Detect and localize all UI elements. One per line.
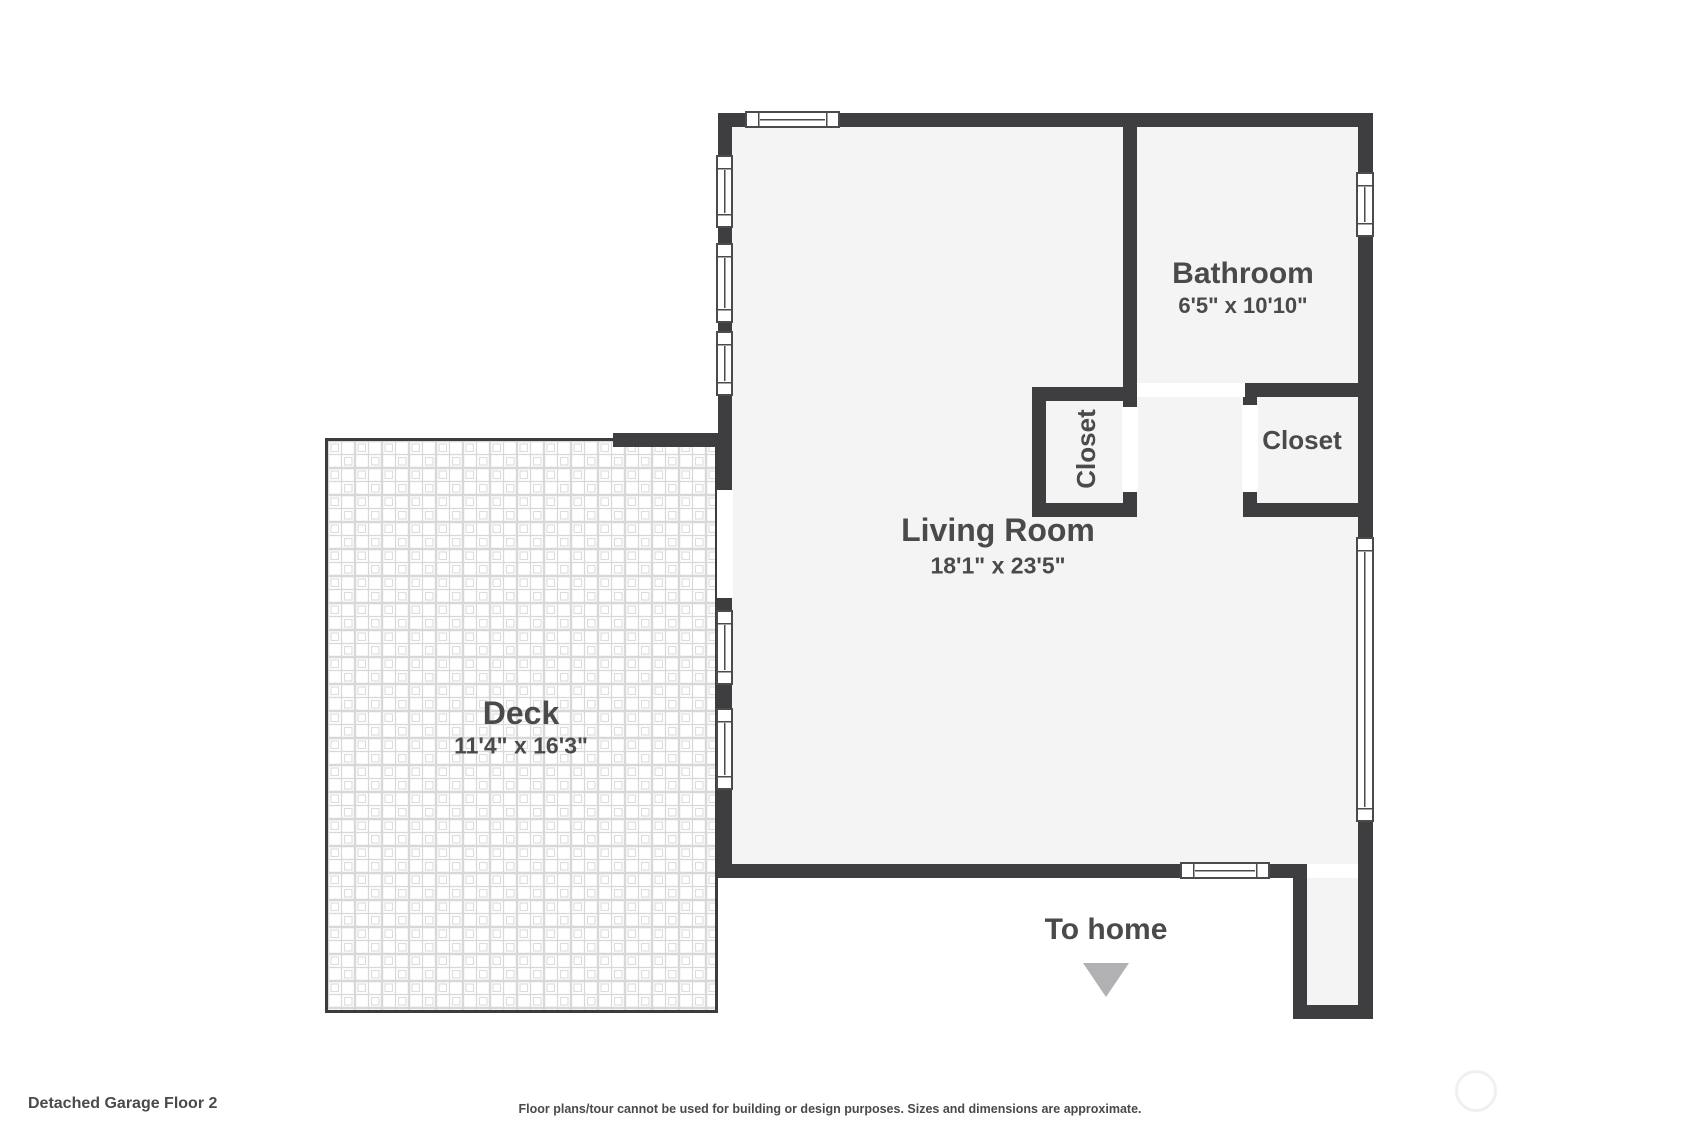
wall-deck-attachment: [613, 433, 732, 447]
closet-right-label: Closet: [1262, 427, 1341, 453]
to-home-arrow-icon: [1083, 963, 1129, 997]
door-opening-to-home: [1307, 864, 1358, 878]
living-room-label: Living Room: [901, 514, 1095, 546]
window-east-long: [1356, 537, 1374, 822]
to-home-label: To home: [1045, 915, 1168, 945]
door-opening-closet-middle: [1122, 407, 1138, 492]
door-opening-closet-right: [1242, 405, 1258, 492]
window-west-3: [716, 331, 733, 396]
window-west-1: [716, 155, 733, 228]
bathroom-dimensions: 6'5" x 10'10": [1178, 295, 1307, 317]
wall-closet-right-bottom: [1243, 503, 1358, 517]
wall-corridor-bottom: [1293, 1005, 1373, 1019]
deck-label: Deck: [483, 697, 560, 729]
wall-living-bathroom-divider: [1123, 127, 1137, 395]
closet-middle-label: Closet: [1073, 409, 1099, 488]
watermark-circle-icon: [1455, 1070, 1497, 1112]
floorplan-title: Detached Garage Floor 2: [28, 1095, 217, 1113]
floorplan-canvas: Living Room 18'1" x 23'5" Bathroom 6'5" …: [0, 0, 1697, 1131]
door-opening-bathroom: [1137, 383, 1245, 397]
door-opening-deck: [717, 490, 733, 598]
exit-corridor-floor: [1307, 878, 1358, 1005]
wall-closet-middle-left: [1032, 387, 1046, 517]
deck-dimensions: 11'4" x 16'3": [454, 735, 588, 758]
window-north: [745, 111, 840, 128]
wall-closet-middle-top: [1032, 387, 1137, 401]
window-south: [1180, 862, 1270, 879]
wall-bathroom-south: [1245, 383, 1358, 397]
wall-corridor-left: [1293, 864, 1307, 1019]
window-west-4: [716, 610, 733, 685]
window-bathroom-east: [1356, 172, 1374, 237]
floorplan-disclaimer: Floor plans/tour cannot be used for buil…: [518, 1102, 1141, 1116]
bathroom-label: Bathroom: [1172, 259, 1314, 289]
window-west-5: [716, 708, 733, 790]
window-west-2: [716, 243, 733, 323]
living-room-dimensions: 18'1" x 23'5": [930, 555, 1065, 578]
